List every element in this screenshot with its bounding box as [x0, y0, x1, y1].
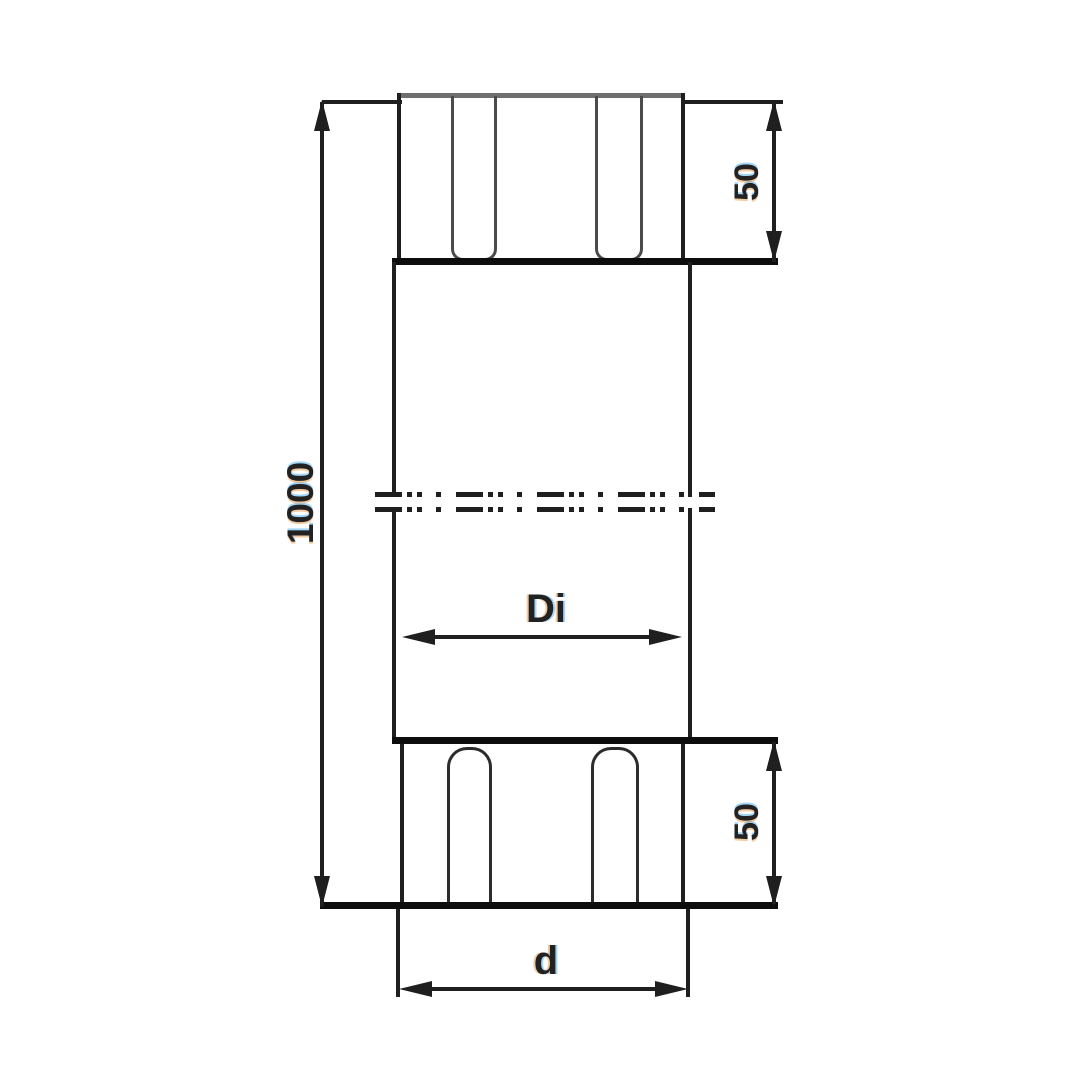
bottom-spigot-left-edge	[400, 744, 404, 905]
arrowhead-left-icon	[399, 981, 432, 997]
top-socket-groove	[595, 96, 643, 261]
bottom-spigot-right-edge	[681, 744, 685, 905]
arrowhead-right-icon	[649, 629, 682, 645]
arrowhead-up-icon	[766, 740, 782, 771]
arrowhead-down-icon	[766, 876, 782, 907]
bottom-edge-line	[320, 902, 778, 909]
top-socket-shoulder-line	[392, 258, 778, 265]
arrowhead-down-icon	[314, 876, 330, 907]
bottom-spigot-groove	[591, 747, 639, 908]
dim-label-bottom-collar-height: 50	[727, 762, 767, 882]
arrowhead-down-icon	[766, 231, 782, 262]
top-socket-groove	[451, 96, 497, 261]
dim-label-inner-diameter: Di	[486, 589, 606, 629]
dim-label-top-collar-height: 50	[727, 122, 767, 242]
arrowhead-left-icon	[402, 629, 435, 645]
arrowhead-right-icon	[655, 981, 688, 997]
dim-label-outer-diameter: d	[486, 941, 606, 981]
bottom-spigot-shoulder-line	[392, 737, 778, 744]
dim-line-outer-diameter	[410, 987, 672, 991]
arrowhead-up-icon	[314, 100, 330, 131]
technical-drawing-canvas: 1000 50 50 Di d	[0, 0, 1080, 1080]
arrowhead-up-icon	[766, 100, 782, 131]
top-socket-left-edge	[397, 93, 401, 261]
bottom-spigot-groove	[447, 747, 492, 908]
extension-line-top-left	[322, 100, 402, 104]
dim-label-overall-length: 1000	[281, 443, 321, 563]
dim-line-inner-diameter	[425, 635, 660, 639]
top-socket-right-edge	[681, 93, 685, 261]
break-line-row	[375, 507, 715, 512]
break-line-row	[375, 492, 715, 497]
